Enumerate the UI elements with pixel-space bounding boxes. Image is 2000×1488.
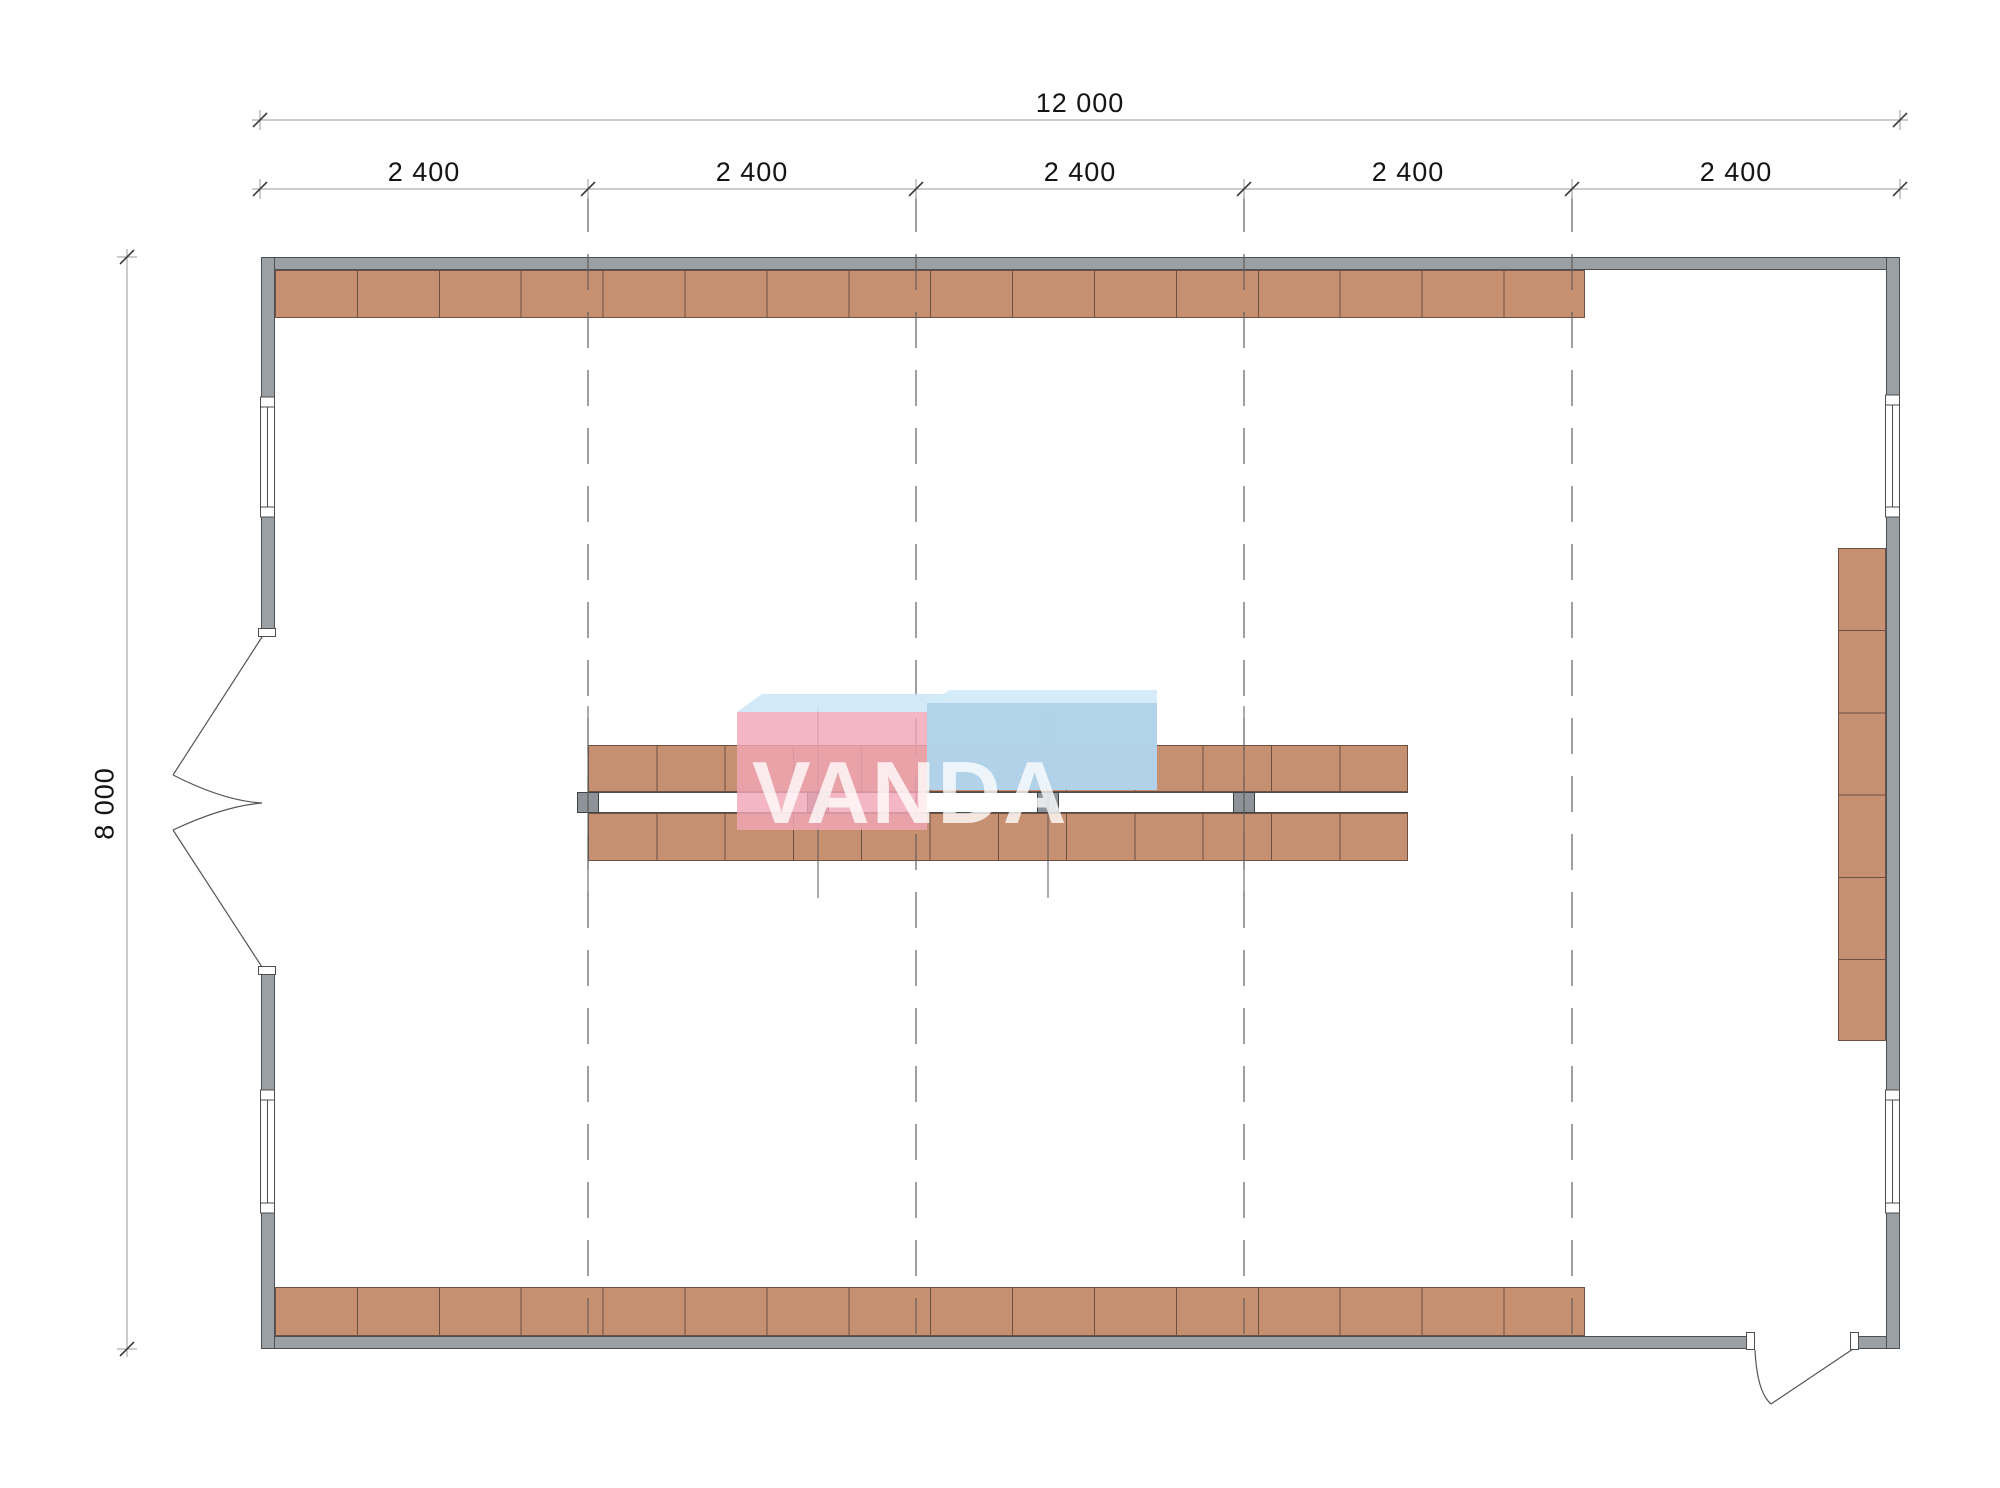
dim-label-bay-5: 2 400: [1676, 157, 1796, 188]
watermark-text: VANDA: [752, 742, 1068, 844]
dim-label-overall-depth: 8 000: [90, 744, 121, 864]
dim-label-overall-width: 12 000: [980, 88, 1180, 119]
window-left-upper: [261, 397, 275, 517]
bottom-door-swing: [1755, 1349, 1853, 1404]
floor-plan-canvas: 12 000 2 400 2 400 2 400 2 400 2 400 8 0…: [0, 0, 2000, 1488]
window-right-lower: [1886, 1090, 1900, 1213]
dim-label-bay-2: 2 400: [692, 157, 812, 188]
dim-label-bay-4: 2 400: [1348, 157, 1468, 188]
dim-label-bay-1: 2 400: [364, 157, 484, 188]
window-right-upper: [1886, 395, 1900, 517]
left-double-door-swing: [173, 637, 262, 967]
dim-label-bay-3: 2 400: [1020, 157, 1140, 188]
window-left-lower: [261, 1090, 275, 1213]
